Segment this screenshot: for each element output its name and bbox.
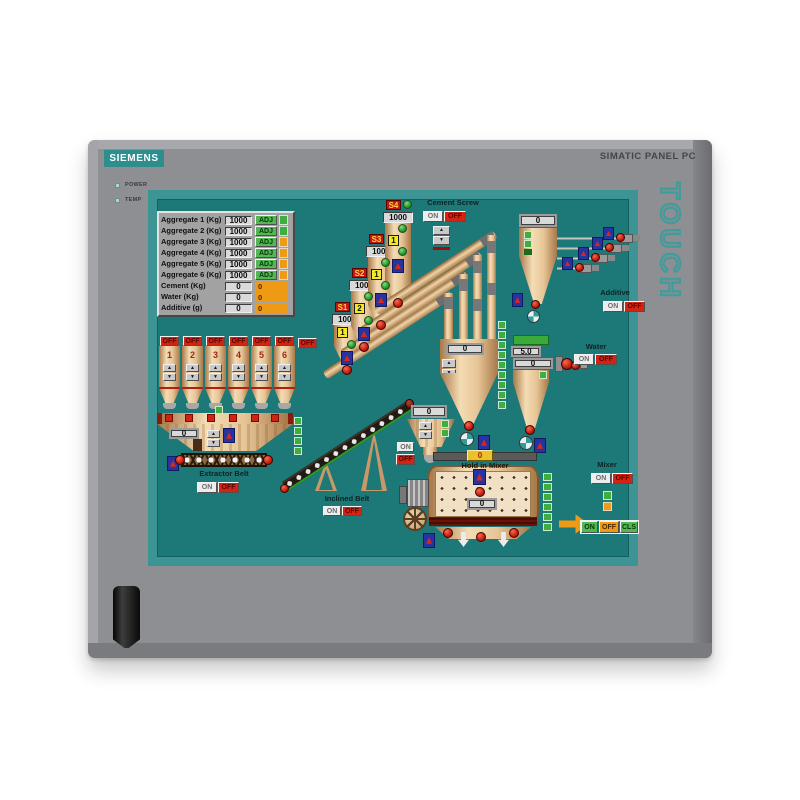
hopper-top-bar bbox=[162, 413, 288, 424]
pipe-segment bbox=[487, 241, 496, 253]
mixer-on-button[interactable]: ON bbox=[591, 473, 611, 484]
temp-led-label: TEMP bbox=[125, 197, 141, 203]
inclined-belt-on-button[interactable]: ON bbox=[323, 506, 341, 516]
recipe-row-label: Aggregate 3 (Kg) bbox=[161, 237, 221, 247]
silo-gate-line bbox=[251, 387, 272, 389]
inlet-gate-indicator bbox=[251, 414, 259, 422]
pipe-segment bbox=[459, 279, 468, 291]
cement-weigher-valve bbox=[464, 421, 474, 431]
row-status-indicator bbox=[279, 248, 288, 258]
inlet-gate-indicator bbox=[207, 414, 215, 422]
silo-outlet bbox=[163, 403, 176, 409]
level-cell bbox=[441, 420, 449, 428]
silo-cone bbox=[251, 389, 272, 403]
stylus[interactable] bbox=[113, 586, 140, 648]
silo-outlet-valve bbox=[393, 298, 403, 308]
row-status-indicator bbox=[279, 226, 288, 236]
aggregate-weigher-value: 0 bbox=[169, 428, 199, 439]
recipe-row-label: Aggregate 4 (Kg) bbox=[161, 248, 221, 258]
pump-nozzle bbox=[592, 265, 599, 271]
silo-outlet bbox=[278, 403, 291, 409]
aggregate-silo-off-button[interactable]: OFF bbox=[160, 336, 179, 346]
recipe-row-label: Aggregate 2 (Kg) bbox=[161, 226, 221, 236]
additive-on-button[interactable]: ON bbox=[603, 301, 623, 312]
cement-screw-label: Cement Screw bbox=[415, 199, 491, 207]
recipe-setpoint[interactable]: 1000 bbox=[225, 227, 252, 236]
status-lamp bbox=[403, 200, 412, 209]
aggregate-silo-off-button[interactable]: OFF bbox=[229, 336, 248, 346]
belt-wheel bbox=[263, 455, 273, 465]
water-off-button[interactable]: OFF bbox=[595, 354, 617, 365]
actual-aux-value: 0 bbox=[255, 303, 288, 313]
pipe-segment bbox=[444, 297, 453, 309]
silo-number: 3 bbox=[205, 350, 226, 360]
pump-gate-icon[interactable] bbox=[578, 247, 589, 260]
level-cell bbox=[543, 523, 552, 531]
recipe-row-label: Aggregate 1 (Kg) bbox=[161, 215, 221, 225]
level-cell bbox=[294, 427, 302, 435]
bezel-edge-left bbox=[88, 140, 98, 658]
aggregate-silo-off-button[interactable]: OFF bbox=[275, 336, 294, 346]
up-arrow-button[interactable]: ▲ bbox=[232, 364, 245, 372]
down-arrow-button[interactable]: ▼ bbox=[255, 373, 268, 381]
water-weigher-value: 0 bbox=[513, 358, 553, 369]
discharge-off-button[interactable]: OFF bbox=[599, 521, 619, 533]
status-lamp bbox=[398, 247, 407, 256]
power-led bbox=[115, 183, 120, 188]
pump-gate-icon[interactable] bbox=[603, 227, 614, 240]
bezel-edge-right bbox=[693, 140, 712, 658]
panel-bezel: SIEMENS SIMATIC PANEL PC POWER TEMP TOUC… bbox=[88, 140, 712, 658]
level-cell bbox=[498, 321, 506, 329]
level-cell bbox=[498, 401, 506, 409]
silo-cone bbox=[159, 389, 180, 403]
mixer-label: Mixer bbox=[587, 461, 627, 469]
pump-gate-icon[interactable] bbox=[562, 257, 573, 270]
down-arrow-button[interactable]: ▼ bbox=[207, 439, 220, 447]
silo-gate-line bbox=[274, 387, 295, 389]
pipe-segment bbox=[473, 299, 482, 311]
silo-sequence-badge: 1 bbox=[337, 327, 348, 338]
water-gate-icon[interactable] bbox=[534, 438, 546, 453]
butterfly-valve-icon[interactable] bbox=[527, 310, 540, 323]
recipe-setpoint[interactable]: 1000 bbox=[225, 238, 252, 247]
silo-number: 6 bbox=[274, 350, 295, 360]
mixer-valve bbox=[475, 487, 485, 497]
aggregate-silo-off-button[interactable]: OFF bbox=[252, 336, 271, 346]
water-setpoint[interactable]: 5.0 bbox=[511, 346, 541, 357]
cement-weigher-value: 0 bbox=[446, 343, 484, 355]
adj-button[interactable]: ADJ bbox=[255, 248, 277, 258]
level-cell bbox=[498, 331, 506, 339]
up-arrow-button[interactable]: ▲ bbox=[186, 364, 199, 372]
cement-silo-label: S1 bbox=[335, 302, 350, 312]
screw-underline bbox=[433, 247, 450, 250]
level-cell bbox=[441, 429, 449, 437]
discharge-valve bbox=[509, 528, 519, 538]
temp-led bbox=[115, 198, 120, 203]
level-cell bbox=[498, 381, 506, 389]
status-lamp bbox=[364, 292, 373, 301]
cement-screw-off-button[interactable]: OFF bbox=[444, 211, 466, 222]
silo-gate-line bbox=[228, 387, 249, 389]
mixer-gate-icon[interactable] bbox=[423, 533, 435, 548]
actual-aux-value: 0 bbox=[255, 292, 288, 302]
level-cell bbox=[498, 351, 506, 359]
row-status-indicator bbox=[279, 259, 288, 269]
additive-silo-value: 0 bbox=[519, 214, 557, 227]
level-cell bbox=[294, 437, 302, 445]
status-lamp bbox=[381, 281, 390, 290]
up-arrow-button[interactable]: ▲ bbox=[278, 364, 291, 372]
level-cell bbox=[543, 503, 552, 511]
pump-valve bbox=[575, 263, 584, 272]
mixer-value: 0 bbox=[467, 498, 497, 510]
transfer-hopper-value: 0 bbox=[411, 405, 447, 418]
adj-button[interactable]: ADJ bbox=[255, 237, 277, 247]
up-arrow-button[interactable]: ▲ bbox=[207, 430, 220, 438]
cement-screw-on-button[interactable]: ON bbox=[423, 211, 443, 222]
bezel-edge-top bbox=[88, 140, 712, 149]
recipe-setpoint[interactable]: 1000 bbox=[225, 249, 252, 258]
recipe-setpoint[interactable]: 1000 bbox=[225, 260, 252, 269]
belt-wheel bbox=[175, 455, 185, 465]
extractor-belt-graphic bbox=[181, 453, 267, 467]
silo-gate-icon[interactable] bbox=[375, 293, 387, 307]
silo-sequence-badge: 2 bbox=[354, 303, 365, 314]
up-arrow-button[interactable]: ▲ bbox=[442, 359, 456, 368]
cement-gate-icon[interactable] bbox=[478, 435, 490, 450]
recipe-row-label: Aggregate 5 (Kg) bbox=[161, 259, 221, 269]
water-valve bbox=[525, 425, 535, 435]
silo-outlet bbox=[255, 403, 268, 409]
up-arrow-button[interactable]: ▲ bbox=[433, 226, 450, 235]
pump-valve bbox=[591, 253, 600, 262]
actual-weight: 0 bbox=[225, 304, 252, 313]
silo-cone bbox=[274, 389, 295, 403]
status-lamp bbox=[398, 224, 407, 233]
actual-weight: 0 bbox=[225, 282, 252, 291]
silo-cone bbox=[205, 389, 226, 403]
level-cell bbox=[524, 240, 532, 248]
level-cell bbox=[524, 249, 532, 255]
silo-gate-icon[interactable] bbox=[392, 259, 404, 273]
water-tank-cap bbox=[513, 335, 549, 345]
aggregate-silo-off-button[interactable]: OFF bbox=[183, 336, 202, 346]
power-led-label: POWER bbox=[125, 182, 147, 188]
status-lamp bbox=[381, 258, 390, 267]
silo-outlet bbox=[232, 403, 245, 409]
mixer-top-value: 0 bbox=[467, 450, 493, 461]
actual-weight: 0 bbox=[225, 293, 252, 302]
water-on-button[interactable]: ON bbox=[574, 354, 594, 365]
water-label: Water bbox=[576, 343, 616, 351]
extractor-belt-label: Extractor Belt bbox=[171, 470, 277, 478]
pump-nozzle bbox=[622, 245, 629, 251]
silo-outlet bbox=[186, 403, 199, 409]
discharge-valve bbox=[443, 528, 453, 538]
silo-outlet-valve bbox=[359, 342, 369, 352]
cement-weigher-cone bbox=[440, 373, 498, 425]
level-cell bbox=[543, 513, 552, 521]
up-arrow-button[interactable]: ▲ bbox=[419, 422, 432, 430]
siemens-logo: SIEMENS bbox=[104, 150, 164, 167]
pump-nozzle bbox=[633, 235, 640, 241]
status-lamp bbox=[364, 316, 373, 325]
adj-button[interactable]: ADJ bbox=[255, 215, 277, 225]
recipe-setpoint[interactable]: 1000 bbox=[225, 271, 252, 280]
additive-off-button[interactable]: OFF bbox=[624, 301, 645, 312]
touch-label: TOUCH bbox=[654, 182, 686, 322]
status-lamp bbox=[347, 340, 356, 349]
discharge-gate-icon[interactable] bbox=[223, 428, 235, 443]
pump-valve bbox=[616, 233, 625, 242]
row-status-indicator bbox=[279, 270, 288, 280]
discharge-cls-button[interactable]: CLS bbox=[620, 521, 638, 533]
recipe-row-label: Water (Kg) bbox=[161, 292, 199, 302]
pipe-segment bbox=[473, 261, 482, 273]
silo-number: 2 bbox=[182, 350, 203, 360]
silo-cone bbox=[228, 389, 249, 403]
silo-gate-line bbox=[182, 387, 203, 389]
down-arrow-button[interactable]: ▼ bbox=[232, 373, 245, 381]
down-arrow-button[interactable]: ▼ bbox=[209, 373, 222, 381]
mixer-status-orange bbox=[603, 502, 612, 511]
level-cell bbox=[498, 341, 506, 349]
mixer-status-green bbox=[603, 491, 612, 500]
discharge-on-button[interactable]: ON bbox=[581, 521, 598, 533]
silo-number: 5 bbox=[251, 350, 272, 360]
silo-cone bbox=[182, 389, 203, 403]
butterfly-valve-icon[interactable] bbox=[460, 432, 474, 446]
hmi-screen[interactable]: Aggregate 1 (Kg) 1000 ADJ Aggregate 2 (K… bbox=[148, 190, 638, 566]
level-cell bbox=[543, 473, 552, 481]
extractor-belt-on-button[interactable]: ON bbox=[197, 482, 217, 493]
transfer-off-button[interactable]: OFF bbox=[396, 454, 415, 465]
level-cell bbox=[498, 361, 506, 369]
silo-gate-line bbox=[205, 387, 226, 389]
up-arrow-button[interactable]: ▲ bbox=[255, 364, 268, 372]
row-status-indicator bbox=[279, 215, 288, 225]
inlet-gate-indicator bbox=[185, 414, 193, 422]
adj-button[interactable]: ADJ bbox=[255, 226, 277, 236]
level-cell bbox=[524, 231, 532, 239]
inclined-belt-graphic bbox=[282, 400, 414, 491]
level-cell bbox=[498, 391, 506, 399]
recipe-setpoint[interactable]: 1000 bbox=[225, 216, 252, 225]
silo-gate-icon[interactable] bbox=[341, 351, 353, 365]
motor-gear-icon bbox=[403, 507, 427, 531]
butterfly-valve-icon[interactable] bbox=[519, 436, 533, 450]
level-cell bbox=[543, 483, 552, 491]
hopper-door bbox=[193, 439, 202, 451]
hopper-cap-right bbox=[288, 413, 293, 424]
silo-outlet-valve bbox=[342, 365, 352, 375]
up-arrow-button[interactable]: ▲ bbox=[209, 364, 222, 372]
down-arrow-button[interactable]: ▼ bbox=[419, 431, 432, 439]
aggregate-silo-off-button[interactable]: OFF bbox=[206, 336, 225, 346]
down-arrow-button[interactable]: ▼ bbox=[278, 373, 291, 381]
additive-label: Additive bbox=[593, 289, 637, 297]
level-cell bbox=[539, 371, 547, 379]
inclined-belt-off-button[interactable]: OFF bbox=[342, 506, 362, 516]
pump-gate-icon[interactable] bbox=[592, 237, 603, 250]
motor-shaft bbox=[399, 486, 407, 504]
silo-sequence-badge: 1 bbox=[388, 235, 399, 246]
up-arrow-button[interactable]: ▲ bbox=[163, 364, 176, 372]
actual-aux-value: 0 bbox=[255, 281, 288, 291]
additive-silo-cone bbox=[519, 256, 557, 304]
belt-pulley bbox=[280, 484, 289, 493]
level-cell bbox=[294, 447, 302, 455]
level-cell bbox=[294, 417, 302, 425]
pipe-segment bbox=[487, 283, 496, 295]
inlet-gate-indicator bbox=[165, 414, 173, 422]
silo-group-off-button[interactable]: OFF bbox=[298, 338, 317, 348]
cement-silo-label: S2 bbox=[352, 268, 367, 278]
recipe-row-label: Cement (Kg) bbox=[161, 281, 206, 291]
additive-gate-icon[interactable] bbox=[512, 293, 523, 307]
mixer-bottom-strip bbox=[429, 517, 537, 526]
recipe-row-label: Aggregate 6 (Kg) bbox=[161, 270, 221, 280]
model-label: SIMATIC PANEL PC bbox=[536, 151, 696, 162]
transfer-on-button[interactable]: ON bbox=[397, 442, 414, 452]
inlet-gate-indicator bbox=[229, 414, 237, 422]
cement-silo-label: S4 bbox=[386, 200, 401, 210]
adj-button[interactable]: ADJ bbox=[255, 270, 277, 280]
mixer-off-button[interactable]: OFF bbox=[612, 473, 633, 484]
row-status-indicator bbox=[279, 237, 288, 247]
recipe-row-label: Additive (g) bbox=[161, 303, 202, 313]
silo-number: 1 bbox=[159, 350, 180, 360]
silo-number: 4 bbox=[228, 350, 249, 360]
extractor-belt-off-button[interactable]: OFF bbox=[218, 482, 239, 493]
silo-sequence-badge: 1 bbox=[371, 269, 382, 280]
discharge-valve bbox=[476, 532, 486, 542]
additive-valve bbox=[531, 300, 540, 309]
bezel-edge-bottom bbox=[88, 643, 712, 658]
silo-outlet-valve bbox=[376, 320, 386, 330]
down-arrow-button[interactable]: ▼ bbox=[186, 373, 199, 381]
adj-button[interactable]: ADJ bbox=[255, 259, 277, 269]
pump-valve bbox=[605, 243, 614, 252]
mixer-motor bbox=[407, 479, 429, 507]
down-arrow-button[interactable]: ▼ bbox=[163, 373, 176, 381]
cement-silo-label: S3 bbox=[369, 234, 384, 244]
silo-gate-icon[interactable] bbox=[358, 327, 370, 341]
cement-silo-value[interactable]: 1000 bbox=[383, 212, 413, 223]
silo-gate-line bbox=[159, 387, 180, 389]
level-cell bbox=[498, 371, 506, 379]
level-cell bbox=[543, 493, 552, 501]
inlet-gate-indicator bbox=[271, 414, 279, 422]
inclined-belt-label: Inclined Belt bbox=[307, 495, 387, 503]
down-arrow-button[interactable]: ▼ bbox=[433, 236, 450, 245]
mixer-inlet-gate-icon[interactable] bbox=[473, 469, 486, 485]
pump-nozzle bbox=[608, 255, 615, 261]
